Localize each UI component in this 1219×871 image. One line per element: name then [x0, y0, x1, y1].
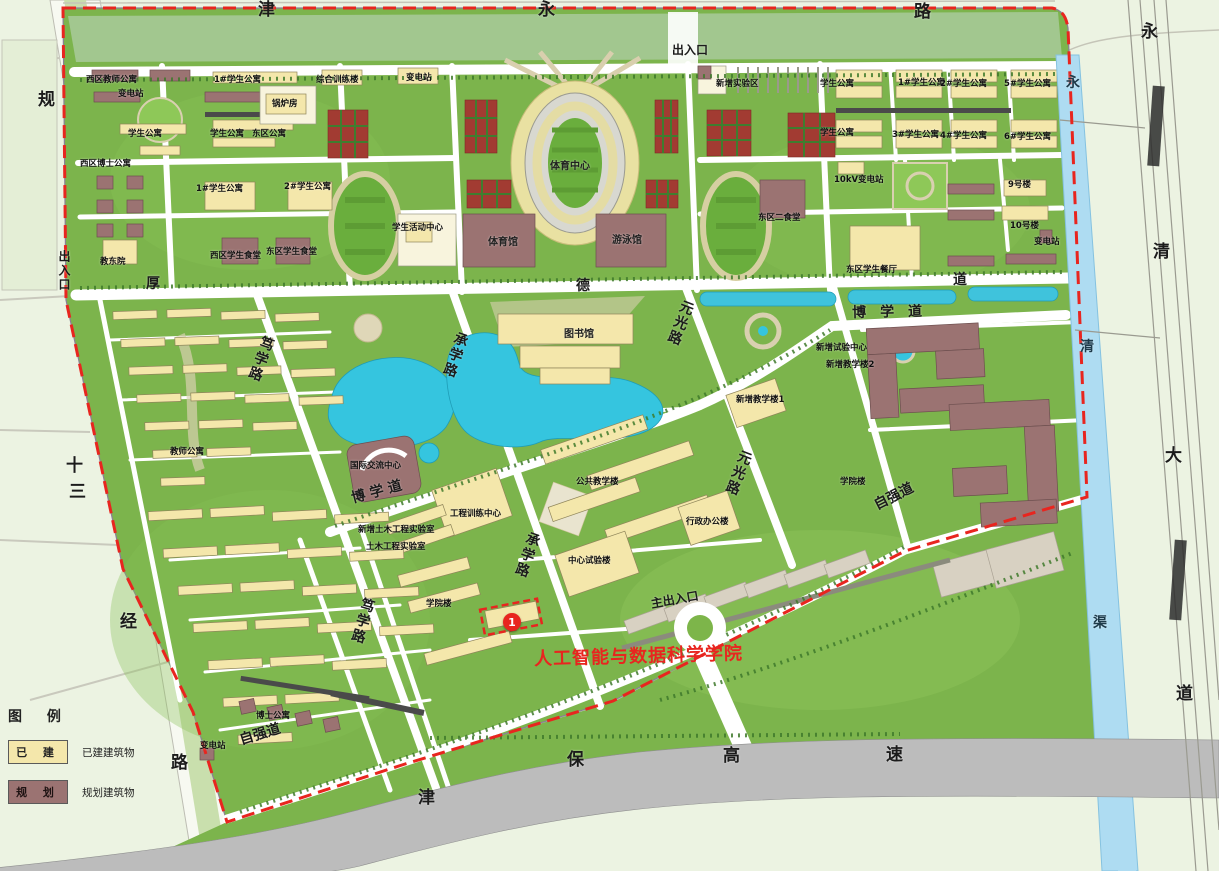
map-label-r1: 道: [1176, 686, 1194, 703]
legend-item-planned: 规 划 规划建筑物: [8, 780, 198, 804]
map-label-r2: 笃学路: [349, 596, 376, 646]
map-label-b2: 体育中心: [550, 162, 590, 172]
planned-swatch: 规 划: [8, 780, 68, 804]
map-label-r2: 笃学路: [246, 334, 276, 384]
map-label-b: 教师公寓: [170, 448, 204, 457]
map-label-r3: 主出入口: [650, 590, 699, 610]
map-label-b: 4#学生公寓: [940, 132, 987, 141]
map-label-b: 10kV变电站: [834, 176, 884, 185]
map-label-b: 学生活动中心: [392, 224, 443, 233]
map-label-r3: 出入口: [58, 250, 70, 292]
map-label-r2: 德: [576, 279, 590, 293]
map-label-b: 西区博士公寓: [80, 160, 131, 169]
map-label-b: 学院楼: [840, 478, 866, 487]
map-label-r1: 路: [914, 4, 932, 21]
legend-item-built: 已 建 已建建筑物: [8, 740, 198, 764]
map-label-r2: 自强道: [238, 722, 282, 748]
map-label-b: 1#学生公寓: [196, 185, 243, 194]
map-label-r1: 规: [38, 92, 56, 109]
map-label-r2: 承学路: [440, 330, 469, 380]
map-label-b: 新增试验中心: [816, 344, 867, 353]
map-label-r2: 承学路: [512, 530, 541, 580]
map-label-r2: 博 学 道: [350, 479, 404, 506]
map-label-b: 新增实验区: [716, 80, 759, 89]
map-label-b: 学院楼: [426, 600, 452, 609]
map-label-b: 工程训练中心: [450, 510, 501, 519]
map-label-b: 西区教师公寓: [86, 76, 137, 85]
map-label-b: 东区学生食堂: [266, 248, 317, 257]
map-label-r1: 速: [886, 747, 904, 764]
map-label-b: 5#学生公寓: [1004, 80, 1051, 89]
map-label-r1: 永: [538, 2, 556, 19]
map-label-b: 学生公寓: [820, 129, 854, 138]
map-label-r3: 出入口: [672, 44, 708, 56]
map-label-b: 西区学生食堂: [210, 252, 261, 261]
map-label-b: 东区二食堂: [758, 214, 801, 223]
map-label-b: 博士公寓: [256, 712, 290, 721]
map-label-b: 东区学生餐厅: [846, 266, 897, 275]
map-label-b: 3#学生公寓: [892, 131, 939, 140]
map-label-r1: 津: [418, 790, 436, 807]
built-swatch: 已 建: [8, 740, 68, 764]
campus-map: 津永路出入口规出入口十三经路永清大道永清渠津保高速厚德道博 学 道博 学 道笃学…: [0, 0, 1219, 871]
map-label-b: 新增教学楼2: [826, 361, 874, 370]
map-label-r2: 厚: [146, 277, 160, 291]
map-label-r2: 元光路: [723, 448, 753, 498]
map-label-b: 6#学生公寓: [1004, 133, 1051, 142]
map-label-b: 1#学生公寓: [214, 76, 261, 85]
map-label-b: 学生公寓: [210, 130, 244, 139]
map-label-r1: 大: [1165, 448, 1183, 465]
map-label-r1: 三: [69, 484, 87, 501]
map-label-b: 公共教学楼: [576, 478, 619, 487]
map-label-r2: 博 学 道: [852, 305, 922, 320]
map-label-b: 新增土木工程实验室: [358, 526, 435, 535]
map-label-b: 变电站: [118, 90, 144, 99]
map-label-c: 渠: [1093, 616, 1107, 630]
map-label-r2: 自强道: [872, 481, 916, 513]
map-label-b: 9号楼: [1008, 181, 1031, 190]
map-label-b: 锅炉房: [272, 100, 298, 109]
map-label-b: 新增教学楼1: [736, 396, 784, 405]
map-label-b: 学生公寓: [128, 130, 162, 139]
map-label-b: 东区公寓: [252, 130, 286, 139]
map-label-c: 清: [1080, 340, 1094, 354]
map-label-b: 变电站: [406, 74, 432, 83]
map-label-b: 1#学生公寓: [898, 79, 945, 88]
map-label-b: 行政办公楼: [686, 518, 729, 527]
map-label-b: 10号楼: [1010, 222, 1039, 231]
map-label-b: 土木工程实验室: [366, 543, 426, 552]
map-label-b: 变电站: [1034, 238, 1060, 247]
map-label-b: 学生公寓: [820, 80, 854, 89]
map-label-r1: 津: [258, 2, 276, 19]
map-label-b: 教东院: [100, 258, 126, 267]
map-label-r1: 保: [567, 752, 585, 769]
map-label-r2: 道: [953, 273, 967, 287]
map-label-r1: 经: [120, 614, 138, 631]
map-label-b2: 图书馆: [564, 330, 594, 340]
map-label-b: 中心试验楼: [568, 557, 611, 566]
map-label-r1: 永: [1141, 24, 1159, 41]
map-label-b2: 体育馆: [488, 238, 518, 248]
map-label-b: 2#学生公寓: [284, 183, 331, 192]
map-label-b: 综合训练楼: [316, 76, 359, 85]
map-label-r1: 十: [66, 458, 84, 475]
map-label-b: 国际交流中心: [350, 462, 401, 471]
built-desc: 已建建筑物: [82, 745, 135, 760]
legend-title: 图 例: [8, 706, 198, 726]
map-label-b: 变电站: [200, 742, 226, 751]
map-label-b2: 游泳馆: [612, 236, 642, 246]
highlight-marker[interactable]: 1: [503, 613, 521, 631]
planned-desc: 规划建筑物: [82, 785, 135, 800]
legend: 图 例 已 建 已建建筑物 规 划 规划建筑物: [8, 706, 198, 820]
map-label-c: 永: [1066, 76, 1080, 90]
map-label-b: 2#学生公寓: [940, 80, 987, 89]
map-label-r2: 元光路: [665, 298, 695, 348]
map-label-r1: 高: [723, 748, 741, 765]
map-label-r1: 清: [1153, 244, 1171, 261]
